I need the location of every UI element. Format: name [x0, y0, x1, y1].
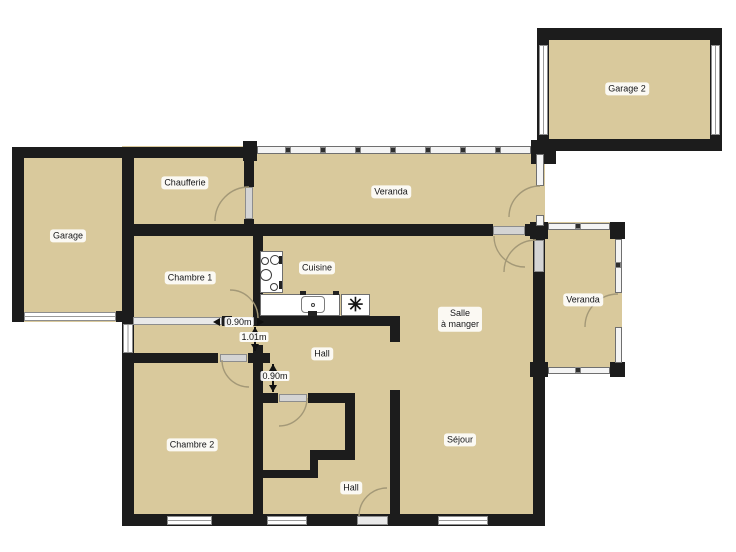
window-hall-south — [267, 516, 307, 525]
measure-corridor-width-arrow-down — [251, 344, 259, 351]
room-label-hall-upper: Hall — [311, 347, 333, 360]
door-leaf-chambre2 — [220, 354, 247, 362]
wall-veranda-right-post-br — [610, 362, 625, 377]
measure-hall-passage-arrow-up — [269, 364, 277, 371]
wall-hall-sejour — [390, 390, 400, 514]
room-label-sejour: Séjour — [444, 433, 476, 446]
measure-door-chambre1-arrow-left — [213, 318, 220, 326]
stove-burner — [260, 269, 272, 281]
measure-door-chambre1-label: 0.90m — [224, 317, 253, 327]
wall-kitchen-bottom — [253, 316, 400, 326]
sink-drain — [311, 303, 315, 307]
glass-tick-mark — [285, 147, 291, 153]
glass-tick-mark — [390, 147, 396, 153]
counter-mark — [300, 291, 306, 295]
door-leaf-wc — [279, 394, 307, 402]
glass-wall-veranda-top-right-b — [536, 215, 544, 226]
wall-garage-top — [12, 147, 134, 158]
room-label-chambre1: Chambre 1 — [165, 271, 216, 284]
glass-wall-veranda2-right-b — [615, 327, 622, 363]
room-label-veranda-right: Veranda — [563, 293, 603, 306]
glass-tick-mark — [615, 262, 621, 268]
wall-wc-bottom — [263, 470, 318, 478]
room-label-veranda-top: Veranda — [371, 185, 411, 198]
door-leaf-veranda2-salle — [534, 240, 544, 272]
door-leaf-chaufferie — [245, 187, 253, 219]
room-label-chaufferie: Chaufferie — [161, 176, 208, 189]
counter-mark — [333, 291, 339, 295]
room-label-hall-lower: Hall — [340, 481, 362, 494]
wall-hall-right-upper — [390, 316, 400, 342]
room-label-garage2: Garage 2 — [605, 82, 649, 95]
room-area-main-house — [122, 146, 545, 526]
door-leaf-veranda-salle — [493, 226, 525, 235]
room-label-cuisine: Cuisine — [299, 261, 335, 274]
wall-veranda-post-left — [243, 141, 257, 161]
wall-garage2-bottom — [537, 139, 722, 151]
window-garage2-right — [711, 45, 720, 135]
wall-garage2-top — [537, 28, 722, 40]
stove-knob — [279, 281, 282, 289]
glass-tick-mark — [355, 147, 361, 153]
closet-front-chambre1 — [133, 317, 222, 325]
stove-knob — [279, 256, 282, 264]
floor-plan: ✳GarageChaufferieVerandaGarage 2Chambre … — [0, 0, 736, 552]
room-label-garage: Garage — [50, 229, 86, 242]
glass-tick-mark — [320, 147, 326, 153]
garage-door-opening — [24, 312, 116, 321]
window-sejour-south — [438, 516, 488, 525]
wall-garage-left — [12, 147, 24, 322]
glass-tick-mark — [425, 147, 431, 153]
kitchen-counter — [260, 294, 340, 316]
measure-hall-passage-label: 0.90m — [260, 371, 289, 381]
window-garage2-left — [539, 45, 548, 135]
measure-hall-passage-arrow-down — [269, 385, 277, 392]
wall-wc-top-left — [262, 393, 278, 403]
kitchen-appliance: ✳ — [341, 294, 370, 316]
measure-corridor-width-label: 1.01m — [239, 332, 268, 342]
window-chambre2-south — [167, 516, 212, 525]
wall-chambre2-top-left — [122, 353, 218, 363]
stove-burner — [270, 283, 278, 291]
corridor-window — [123, 324, 133, 353]
stove-burner — [261, 257, 269, 265]
room-label-salle-a-manger: Salle à manger — [438, 307, 482, 332]
glass-wall-veranda-top-right-a — [536, 154, 544, 186]
room-label-chambre2: Chambre 2 — [167, 438, 218, 451]
wall-veranda-right-post-tr — [610, 222, 625, 239]
wall-garage-bottom-left — [12, 311, 24, 322]
glass-tick-mark — [460, 147, 466, 153]
glass-tick-mark — [495, 147, 501, 153]
wall-main-top — [134, 147, 257, 158]
glass-tick-mark — [575, 223, 581, 229]
measure-door-chambre1-arrow-right — [257, 318, 264, 326]
glass-tick-mark — [575, 367, 581, 373]
wall-mid-horizontal-left — [122, 224, 493, 236]
sink-tap — [308, 311, 317, 316]
door-leaf-entrance — [357, 516, 388, 525]
wall-veranda-right-post-bl — [530, 362, 548, 377]
